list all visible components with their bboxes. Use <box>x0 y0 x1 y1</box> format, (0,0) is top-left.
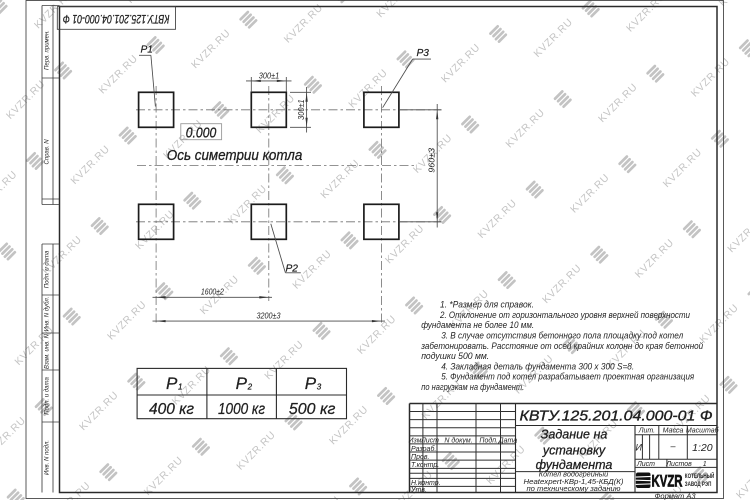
svg-text:Перв. примен.: Перв. примен. <box>44 30 50 70</box>
svg-text:КВТУ.125.201.04.000-01 Ф: КВТУ.125.201.04.000-01 Ф <box>63 12 170 24</box>
svg-text:ЗАВОД РЭП: ЗАВОД РЭП <box>685 481 712 488</box>
svg-text:Задание на: Задание на <box>541 427 608 441</box>
svg-text:Ось симетрии котла: Ось симетрии котла <box>167 147 302 164</box>
svg-text:960±3: 960±3 <box>427 147 437 172</box>
svg-text:5. Фундамент под котел разраба: 5. Фундамент под котел разрабатывает про… <box>441 372 694 382</box>
svg-text:400 кг: 400 кг <box>149 401 194 418</box>
svg-text:1600±2: 1600±2 <box>201 288 224 297</box>
svg-text:Дата: Дата <box>498 438 518 445</box>
svg-text:Масштаб: Масштаб <box>686 427 720 435</box>
svg-text:Утв.: Утв. <box>410 487 427 494</box>
svg-text:500 кг: 500 кг <box>289 401 336 418</box>
svg-text:3. В случае отсутствия бетонно: 3. В случае отсутствия бетонного пола пл… <box>441 331 684 341</box>
svg-text:по нагрузкам на фундамент.: по нагрузкам на фундамент. <box>421 382 524 392</box>
svg-text:–: – <box>669 441 676 451</box>
svg-text:1. *Размер для справок.: 1. *Размер для справок. <box>440 300 534 310</box>
svg-text:Масса: Масса <box>663 428 684 435</box>
svg-text:КОТЕЛЬНЫЙ: КОТЕЛЬНЫЙ <box>685 472 715 480</box>
svg-text:KVZR: KVZR <box>652 471 683 490</box>
svg-text:Подп. и дата: Подп. и дата <box>44 377 50 415</box>
svg-text:И: И <box>635 443 642 453</box>
svg-text:Р1: Р1 <box>141 45 153 56</box>
svg-text:3200±3: 3200±3 <box>257 312 281 321</box>
svg-text:по техническому заданию: по техническому заданию <box>527 484 622 493</box>
svg-text:Листов: Листов <box>665 461 692 468</box>
svg-text:забетонировать. Расстояние от: забетонировать. Расстояние от осей крайн… <box>420 341 703 351</box>
svg-text:0.000: 0.000 <box>186 124 217 141</box>
svg-text:1: 1 <box>703 461 707 468</box>
svg-text:Инв. N дубл.: Инв. N дубл. <box>44 297 50 332</box>
svg-text:Т.контр.: Т.контр. <box>411 462 439 469</box>
svg-text:Разраб.: Разраб. <box>411 445 436 453</box>
svg-text:Лист: Лист <box>420 438 439 445</box>
svg-text:Р3: Р3 <box>417 48 430 59</box>
svg-text:2. Отклонение от горизонтально: 2. Отклонение от горизонтального уровня … <box>439 310 690 320</box>
svg-text:Подп.: Подп. <box>479 437 498 445</box>
svg-text:300±1: 300±1 <box>259 72 280 81</box>
svg-text:Инв. N подл.: Инв. N подл. <box>44 440 50 475</box>
svg-text:КВТУ.125.201.04.000-01 Ф: КВТУ.125.201.04.000-01 Ф <box>520 408 713 424</box>
svg-text:фундамента не более 10 мм.: фундамента не более 10 мм. <box>421 320 534 330</box>
svg-text:Подп. и дата: Подп. и дата <box>44 250 50 288</box>
svg-text:подушки 500 мм.: подушки 500 мм. <box>421 351 489 361</box>
svg-text:Пров.: Пров. <box>411 454 430 461</box>
svg-text:Справ. N: Справ. N <box>44 139 50 165</box>
svg-text:Взам. инв. N: Взам. инв. N <box>44 333 50 369</box>
svg-text:Лит.: Лит. <box>638 428 655 435</box>
svg-text:Формат А3: Формат А3 <box>654 491 696 500</box>
svg-text:300±1: 300±1 <box>297 99 306 120</box>
svg-text:1000 кг: 1000 кг <box>218 401 265 418</box>
svg-text:Лист: Лист <box>636 461 655 468</box>
svg-text:4. Закладная деталь фундамента: 4. Закладная деталь фундамента 300 x 300… <box>441 361 634 371</box>
svg-text:N докум.: N докум. <box>444 437 472 445</box>
svg-text:установку: установку <box>542 444 606 458</box>
svg-text:1:20: 1:20 <box>692 442 713 454</box>
